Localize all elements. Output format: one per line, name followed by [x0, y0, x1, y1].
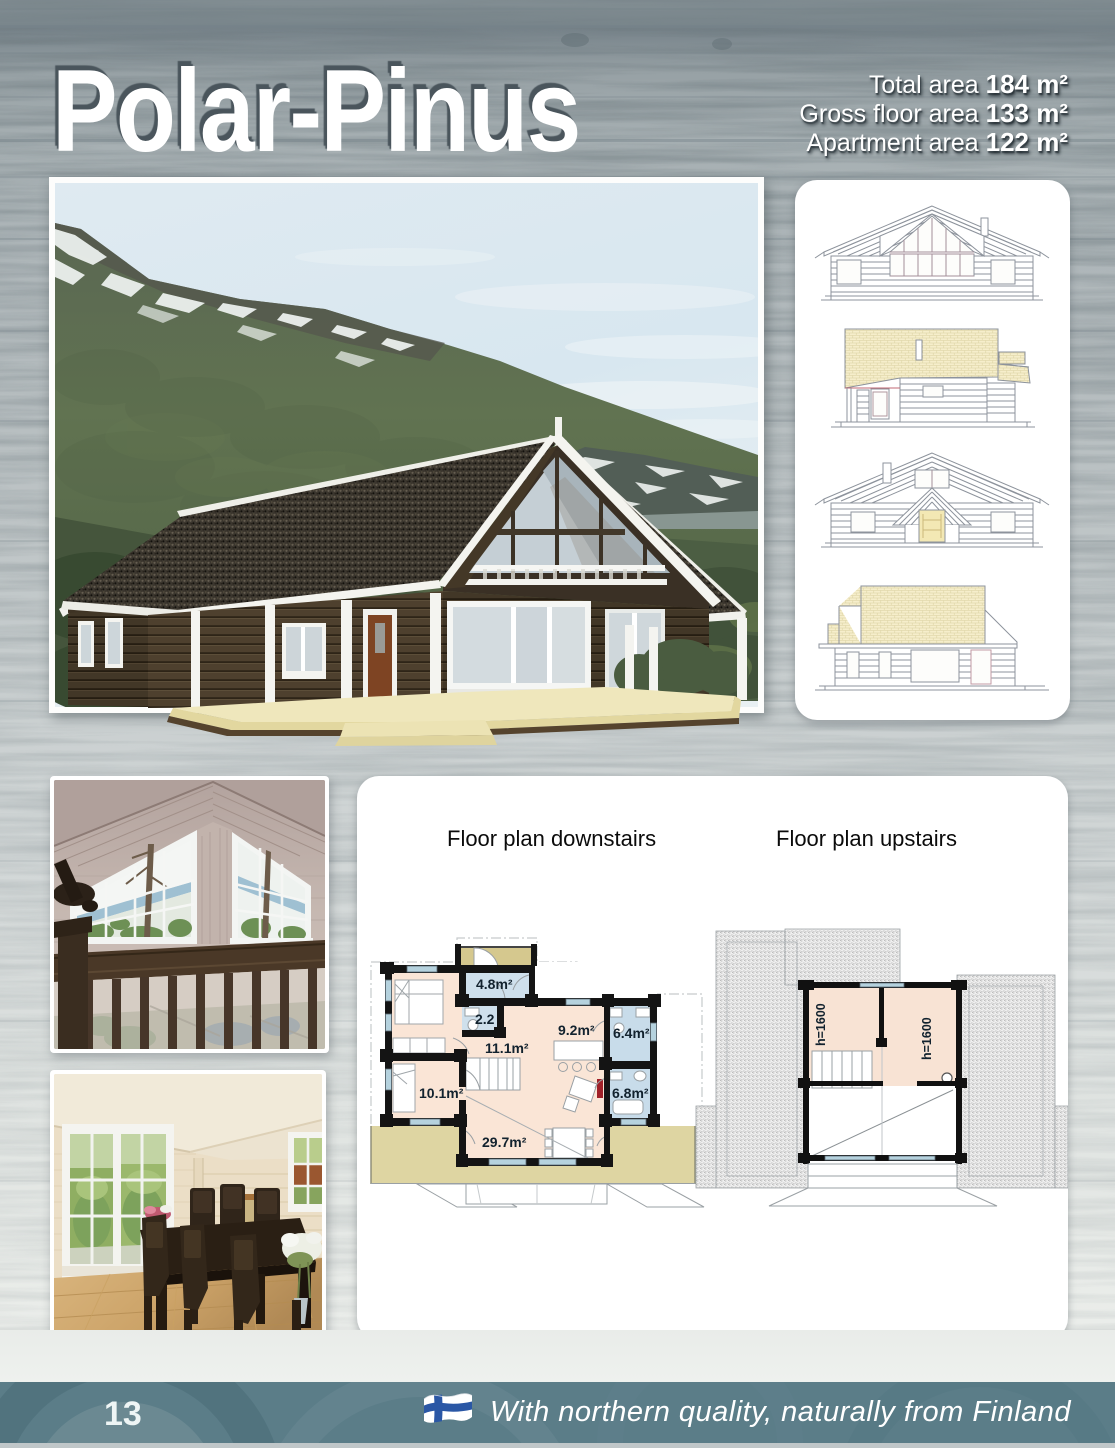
svg-text:29.7m²: 29.7m² [482, 1134, 527, 1150]
svg-text:h=1600: h=1600 [920, 1017, 934, 1060]
svg-text:4.8m²: 4.8m² [476, 976, 513, 992]
svg-text:h=1600: h=1600 [814, 1003, 828, 1046]
svg-text:10.1m²: 10.1m² [419, 1085, 464, 1101]
svg-text:9.2m²: 9.2m² [558, 1022, 595, 1038]
svg-text:6.8m²: 6.8m² [612, 1085, 649, 1101]
svg-text:6.4m²: 6.4m² [613, 1025, 650, 1041]
svg-text:11.1m²: 11.1m² [485, 1040, 529, 1056]
svg-text:2.2: 2.2 [475, 1011, 495, 1027]
